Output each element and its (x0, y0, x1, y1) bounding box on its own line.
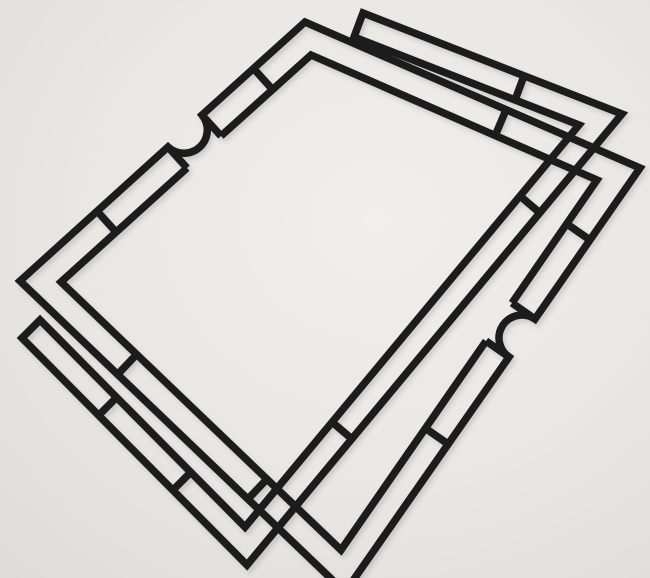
photo-of-two-black-frames (0, 0, 650, 578)
frames-photo-svg (0, 0, 650, 578)
